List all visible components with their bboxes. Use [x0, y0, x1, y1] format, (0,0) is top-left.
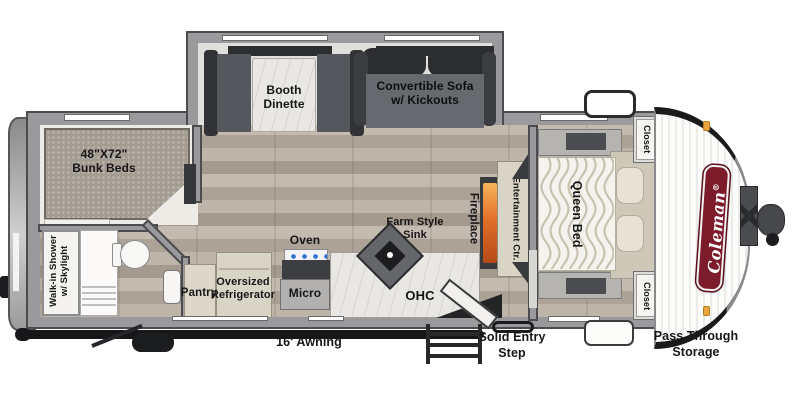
queen-bed-label: Queen Bed [570, 172, 584, 256]
entertainment-label: Entertainment Ctr. [510, 162, 521, 274]
sofa-label-line2: w/ Kickouts [366, 94, 484, 108]
slideout-window-right [384, 35, 480, 41]
bedside-shelf-top-inset [566, 133, 606, 150]
sofa-label: Convertible Sofa w/ Kickouts [366, 80, 484, 108]
hitch-bracket [740, 186, 758, 246]
shower-door-louvers [82, 282, 116, 306]
wheel [132, 333, 174, 352]
closet-bottom-label: Closet [642, 275, 652, 317]
bunk-label-line2: Bunk Beds [56, 162, 152, 176]
sink-drain [387, 252, 393, 258]
pillow-top [616, 167, 644, 204]
bunk-ladder-panel [184, 164, 196, 204]
toilet [120, 240, 150, 269]
shower-label-line2: w/ Skylight [60, 229, 71, 313]
bedside-shelf-bottom-inset [566, 278, 606, 294]
dinette-label: Booth Dinette [250, 84, 318, 112]
bunk-label: 48"X72" Bunk Beds [56, 148, 152, 176]
dinette-bench-left-back [204, 50, 218, 136]
sink-label-line1: Farm Style [384, 216, 446, 229]
dinette-bench-right-seat [317, 54, 351, 132]
sink-label: Farm Style Sink [384, 216, 446, 241]
refrigerator-label-line1: Oversized [210, 276, 276, 289]
registered-mark-icon: ® [711, 182, 722, 191]
bottom-window-left [172, 316, 268, 321]
hitch-jack [757, 204, 785, 236]
slideout-window-left [222, 35, 328, 41]
refrigerator-door-line [219, 268, 269, 270]
oven-label: Oven [282, 234, 328, 248]
shower-label: Walk-in Shower w/ Skylight [49, 229, 71, 313]
bedroom-door-gap [529, 250, 537, 308]
dinette-label-line2: Dinette [250, 98, 318, 112]
hitch-jack-wheel [766, 233, 779, 246]
sofa-back-cushion-left [362, 48, 426, 76]
awning-label: 16' Awning [254, 335, 364, 349]
entry-step-label-line2: Step [462, 345, 562, 361]
entry-step-label: Solid Entry Step [462, 329, 562, 362]
awning-roller [20, 330, 484, 339]
sofa-arm-right [482, 52, 496, 126]
bunk-label-line1: 48"X72" [56, 148, 152, 162]
sofa-label-line1: Convertible Sofa [366, 80, 484, 94]
bunk-window [64, 114, 130, 121]
baggage-door [584, 320, 634, 346]
ohc-label: OHC [396, 289, 444, 304]
entry-step-label-line1: Solid Entry [462, 329, 562, 345]
storage-label-line1: Pass Through [640, 328, 752, 344]
storage-label-line2: Storage [640, 344, 752, 360]
storage-label: Pass Through Storage [640, 328, 752, 361]
pillow-bottom [616, 215, 644, 252]
fireplace-label: Fireplace [466, 183, 479, 255]
rear-window-strip [13, 233, 19, 291]
refrigerator-label-line2: Refrigerator [210, 289, 276, 302]
bottom-window-mid [308, 316, 344, 321]
bedroom-bay-window [584, 90, 636, 118]
dinette-label-line1: Booth [250, 84, 318, 98]
closet-top-label: Closet [642, 118, 652, 160]
marker-light-top-icon [703, 121, 710, 131]
marker-light-bottom-icon [703, 306, 710, 316]
dinette-bench-left-seat [217, 54, 251, 132]
oven-range [282, 260, 330, 280]
fireplace [483, 183, 497, 263]
floorplan-canvas: 48"X72" Bunk Beds Walk-in Shower w/ Skyl… [0, 0, 800, 400]
refrigerator-label: Oversized Refrigerator [210, 276, 276, 301]
sink-label-line2: Sink [384, 229, 446, 242]
micro-label: Micro [280, 287, 330, 301]
